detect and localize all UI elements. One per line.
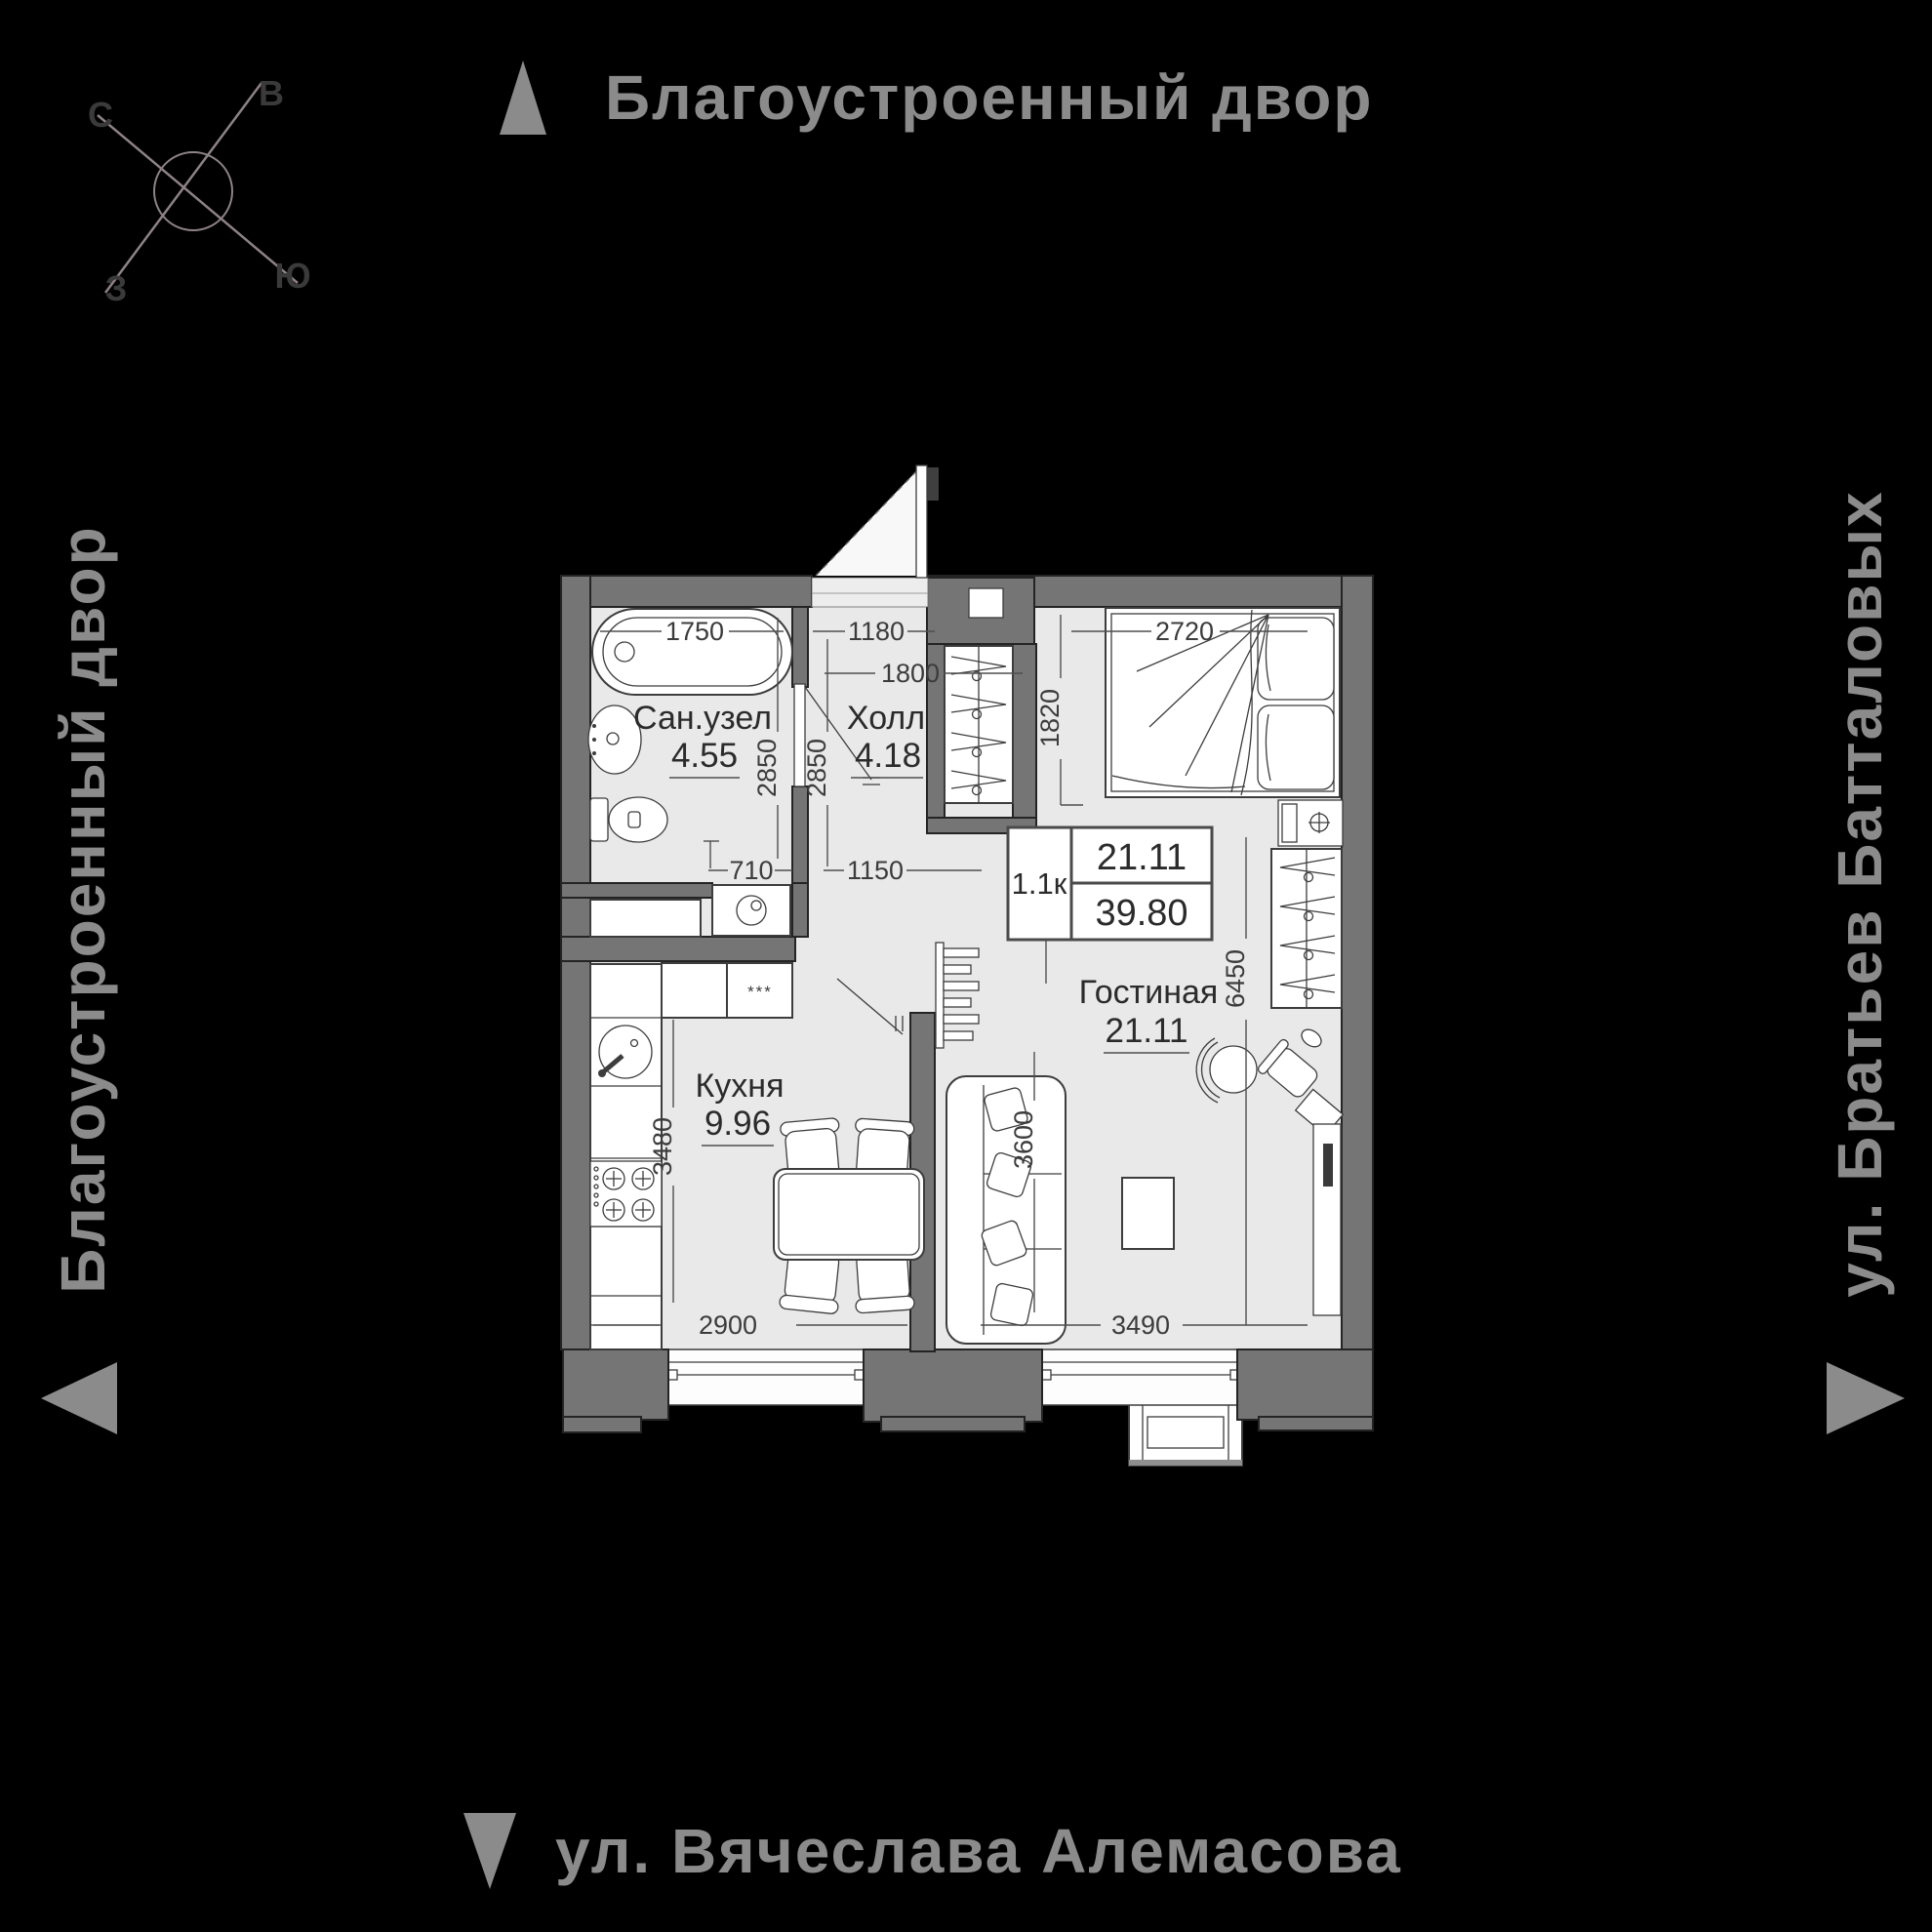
sofa: [946, 1076, 1066, 1344]
bathroom-name: Сан.узел: [633, 700, 772, 737]
hall-area: 4.18: [855, 737, 921, 775]
floorplan-page: С В З Ю Благоустроенный двор ул. Вячесла…: [0, 0, 1932, 1932]
entrance-door: [812, 465, 939, 607]
bathroom-area: 4.55: [671, 737, 738, 775]
dim-bath-bottom: 710: [729, 856, 773, 885]
dim-hall-depth: 2850: [802, 739, 831, 797]
dim-hall-top: 1180: [848, 617, 905, 646]
dim-hall-bottom: 1150: [847, 856, 904, 885]
dim-living-width: 3490: [1111, 1310, 1170, 1340]
living-area: 21.11: [1106, 1012, 1188, 1050]
entrance-door-jamb: [927, 467, 939, 501]
living-name: Гостиная: [1079, 974, 1219, 1011]
kitchen-area: 9.96: [704, 1105, 771, 1143]
hall-name: Холл: [847, 700, 925, 737]
dim-bed-side: 1820: [1035, 689, 1065, 747]
apartment-living-area: 21.11: [1097, 837, 1187, 878]
washing-machine: [712, 885, 790, 936]
dim-bed-width: 2720: [1155, 617, 1214, 646]
bedroom-wardrobe: [1271, 849, 1342, 1008]
dim-bathroom-depth: 2850: [752, 739, 782, 797]
bed: [1106, 608, 1340, 797]
dim-sofa-side: 3600: [1009, 1110, 1038, 1169]
dim-living-depth: 6450: [1221, 949, 1250, 1008]
apartment-type: 1.1к: [1012, 866, 1067, 901]
dim-hall-inner: 1800: [881, 659, 940, 688]
balcony: [1129, 1403, 1242, 1466]
kitchen-sink: [598, 1026, 652, 1078]
hall-wardrobe: [945, 646, 1013, 803]
vent-shaft: [969, 588, 1003, 618]
living-window: [1042, 1349, 1239, 1405]
dim-kitchen-depth: 3480: [648, 1117, 677, 1176]
bathroom-cabinet: [590, 900, 701, 937]
dim-kitchen-width: 2900: [699, 1310, 757, 1340]
toilet: [590, 797, 667, 842]
kitchen-name: Кухня: [696, 1067, 785, 1105]
nightstand: [1278, 800, 1343, 846]
cabinet-stars: ***: [747, 983, 773, 1001]
floor-plan: ***: [0, 0, 1932, 1932]
entrance-door-leaf: [916, 465, 927, 578]
coffee-table: [1122, 1178, 1174, 1249]
apartment-total-area: 39.80: [1095, 893, 1187, 934]
kitchen-window: [668, 1349, 864, 1405]
dim-bathtub: 1750: [665, 617, 724, 646]
